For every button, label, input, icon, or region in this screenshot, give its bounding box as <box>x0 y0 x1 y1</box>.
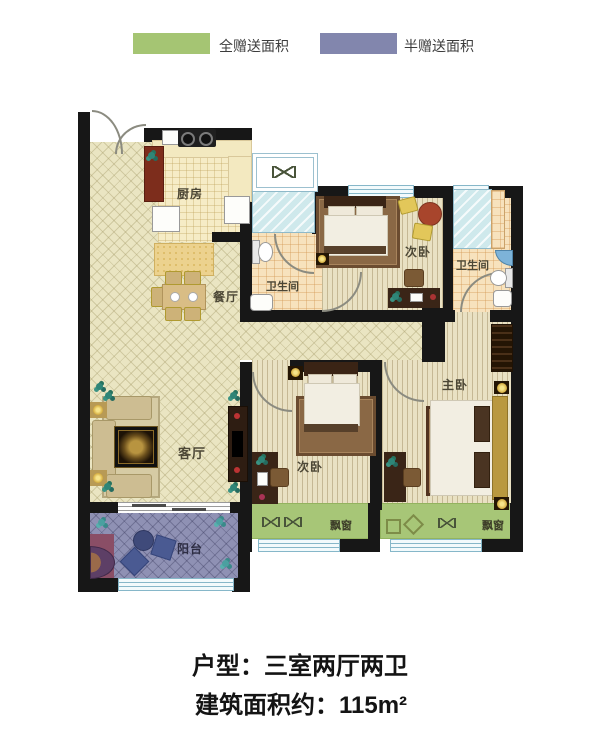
lamp-icon <box>291 368 300 377</box>
desk-chair <box>270 468 289 487</box>
kitchen-cabinet <box>152 206 180 232</box>
cushion-icon <box>262 517 280 527</box>
bathroom2-label: 卫生间 <box>456 257 489 273</box>
plant-icon <box>105 392 112 399</box>
plate-icon <box>188 292 198 302</box>
sliding-panel <box>172 508 206 511</box>
area-summary: 建筑面积约：115m² <box>195 685 407 720</box>
plant-icon <box>230 392 237 399</box>
wall <box>232 578 250 592</box>
balcony-label: 阳台 <box>177 540 203 557</box>
tv-cabinet <box>228 406 248 482</box>
toilet-bowl <box>258 242 273 262</box>
sliding-panel <box>132 504 166 507</box>
wall <box>338 539 370 552</box>
bay-window-label: 飘窗 <box>482 517 504 533</box>
kitchen-sink <box>162 130 179 145</box>
plant-icon <box>222 560 229 567</box>
bath-shelf <box>491 190 505 249</box>
dining-chair <box>165 271 182 285</box>
legend-label-half-gift: 半赠送面积 <box>404 36 474 56</box>
sofa-seat <box>106 474 152 498</box>
desk-book <box>410 293 423 302</box>
dining-label: 餐厅 <box>213 288 239 305</box>
bathroom-sink <box>250 294 273 311</box>
wall <box>443 186 453 322</box>
bedroom-top-label: 次卧 <box>405 243 431 260</box>
pillow <box>474 452 490 488</box>
wall <box>422 308 445 362</box>
dining-chair <box>165 307 182 321</box>
master-label: 主卧 <box>442 376 468 393</box>
plant-icon <box>216 518 223 525</box>
bed-foot-throw <box>304 424 358 432</box>
dining-chair <box>184 271 201 285</box>
tv-screen <box>232 431 243 457</box>
lamp-icon <box>93 473 103 483</box>
shaft-symbol-icon <box>272 166 296 178</box>
bay-window-label: 飘窗 <box>330 517 352 533</box>
burner-icon <box>199 132 213 146</box>
kitchen-label: 厨房 <box>177 185 203 202</box>
coffee-table <box>114 426 158 468</box>
desk-chair <box>403 468 421 487</box>
plant-icon <box>96 383 103 390</box>
decor-icon <box>234 413 240 419</box>
plant-icon <box>388 458 395 465</box>
desk-decor <box>430 294 436 300</box>
floor-plan-page: 全赠送面积 半赠送面积 <box>0 0 600 746</box>
master-headboard <box>492 396 508 500</box>
shower-area <box>252 191 315 233</box>
chair <box>412 222 433 241</box>
round-table <box>418 202 442 226</box>
bed-duvet <box>304 383 360 426</box>
plate-icon <box>170 292 180 302</box>
hallway-floor <box>240 322 422 360</box>
wall <box>240 503 252 552</box>
desk-book <box>257 472 268 486</box>
decor-icon <box>234 467 240 473</box>
living-label: 客厅 <box>178 443 206 462</box>
cushion-icon <box>284 517 302 527</box>
plant-icon <box>148 152 155 159</box>
shower-area <box>453 189 492 249</box>
cushion-icon <box>438 518 456 528</box>
plant-icon <box>104 483 111 490</box>
wall <box>212 232 250 242</box>
desk-chair <box>404 269 424 287</box>
dining-chair <box>184 307 201 321</box>
legend-swatch-half-gift <box>320 33 397 54</box>
lamp-icon <box>93 405 103 415</box>
wall <box>90 502 118 513</box>
wall <box>78 578 118 592</box>
desk-decor <box>259 494 265 500</box>
legend-label-full-gift: 全赠送面积 <box>219 36 289 56</box>
bathroom1-label: 卫生间 <box>266 278 299 294</box>
lamp-icon <box>318 255 326 263</box>
plant-icon <box>98 519 105 526</box>
lamp-icon <box>497 383 507 393</box>
diamond-decor-icon <box>386 519 401 534</box>
window <box>390 539 482 552</box>
bedroom-bottom-label: 次卧 <box>297 458 323 475</box>
legend-swatch-full-gift <box>133 33 210 54</box>
burner-icon <box>181 132 195 146</box>
fridge <box>224 196 250 224</box>
pillow <box>474 406 490 442</box>
wardrobe <box>491 324 513 372</box>
plant-icon <box>230 484 237 491</box>
lamp-icon <box>497 499 507 509</box>
plant-icon <box>392 293 399 300</box>
bed-foot-throw <box>324 246 386 254</box>
plant-icon <box>258 456 265 463</box>
toilet-bowl <box>490 270 507 286</box>
sofa-seat <box>106 396 152 420</box>
window <box>258 539 340 552</box>
wall <box>78 112 90 592</box>
layout-summary: 户型：三室两厅两卫 <box>192 646 408 681</box>
window <box>118 578 234 591</box>
entry-door-arc <box>115 124 146 154</box>
bathroom-sink <box>493 290 512 307</box>
stove <box>178 129 216 147</box>
wall <box>480 539 523 552</box>
